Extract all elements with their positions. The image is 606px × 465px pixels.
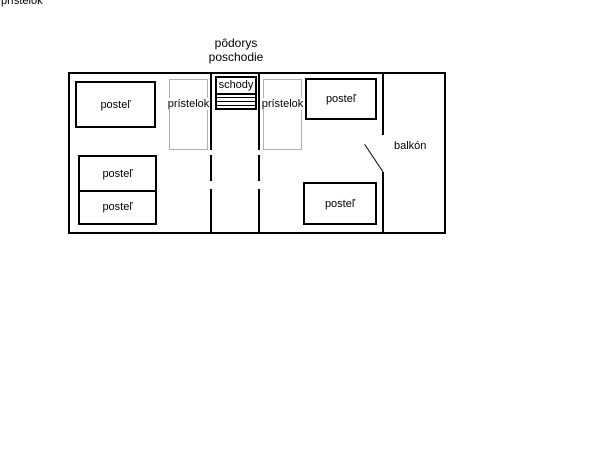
plan-title-line2: poschodie: [160, 50, 312, 64]
paint-canvas: prístelok pôdorys poschodie posteľ poste…: [0, 0, 606, 465]
plan-title: pôdorys poschodie: [160, 36, 312, 64]
stair-tread-line: [217, 105, 255, 106]
balcony-label: balkón: [394, 140, 426, 152]
stairs-label: schody: [217, 78, 255, 95]
bed-label: posteľ: [325, 198, 355, 210]
bed-box-stack-top: posteľ: [80, 157, 155, 190]
balcony-wall-top: [382, 72, 384, 135]
corner-cutoff-label: prístelok: [1, 0, 43, 8]
corridor-left-wall-middle: [210, 155, 212, 181]
bed-box-top-right: posteľ: [305, 78, 377, 120]
stair-tread-line: [217, 101, 255, 102]
corridor-right-wall-middle: [258, 155, 260, 181]
stair-tread-line: [217, 97, 255, 98]
annex-box-left: prístelok: [169, 79, 208, 150]
bed-box-bottom-right: posteľ: [303, 182, 377, 225]
annex-label: prístelok: [168, 98, 210, 110]
balcony-wall-bottom: [382, 172, 384, 233]
annex-box-right: prístelok: [263, 79, 302, 150]
bed-box-top-left: posteľ: [75, 81, 156, 128]
plan-title-line1: pôdorys: [160, 36, 312, 50]
corridor-left-wall-bottom: [210, 189, 212, 233]
bed-label: posteľ: [326, 93, 356, 105]
corridor-right-wall-top: [258, 72, 260, 150]
bed-box-stack-bottom: posteľ: [80, 190, 155, 223]
bed-label: posteľ: [102, 201, 132, 213]
bed-label: posteľ: [102, 168, 132, 180]
stairs-box: schody: [215, 76, 257, 110]
bed-label: posteľ: [100, 99, 130, 111]
annex-label: prístelok: [262, 98, 304, 110]
corridor-left-wall-top: [210, 72, 212, 150]
bed-box-stacked-pair: posteľ posteľ: [78, 155, 157, 225]
corridor-right-wall-bottom: [258, 189, 260, 233]
